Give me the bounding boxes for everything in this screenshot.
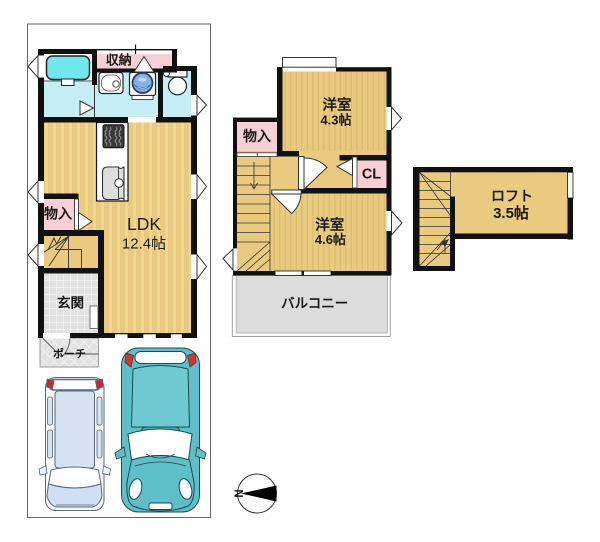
- svg-text:バルコニー: バルコニー: [281, 296, 348, 311]
- svg-text:洋室: 洋室: [323, 96, 352, 114]
- svg-text:N: N: [234, 489, 246, 497]
- svg-text:玄関: 玄関: [57, 295, 84, 311]
- svg-text:4.6帖: 4.6帖: [315, 232, 346, 247]
- svg-text:物入: 物入: [44, 206, 72, 222]
- svg-text:3.5帖: 3.5帖: [493, 204, 529, 222]
- svg-text:収納: 収納: [106, 53, 132, 68]
- svg-text:12.4帖: 12.4帖: [122, 236, 166, 253]
- svg-text:CL: CL: [362, 167, 381, 183]
- svg-text:4.3帖: 4.3帖: [320, 113, 351, 128]
- svg-text:LDK: LDK: [127, 214, 161, 234]
- svg-text:ポーチ: ポーチ: [53, 347, 86, 361]
- svg-text:物入: 物入: [243, 128, 271, 144]
- svg-text:ロフト: ロフト: [491, 188, 533, 204]
